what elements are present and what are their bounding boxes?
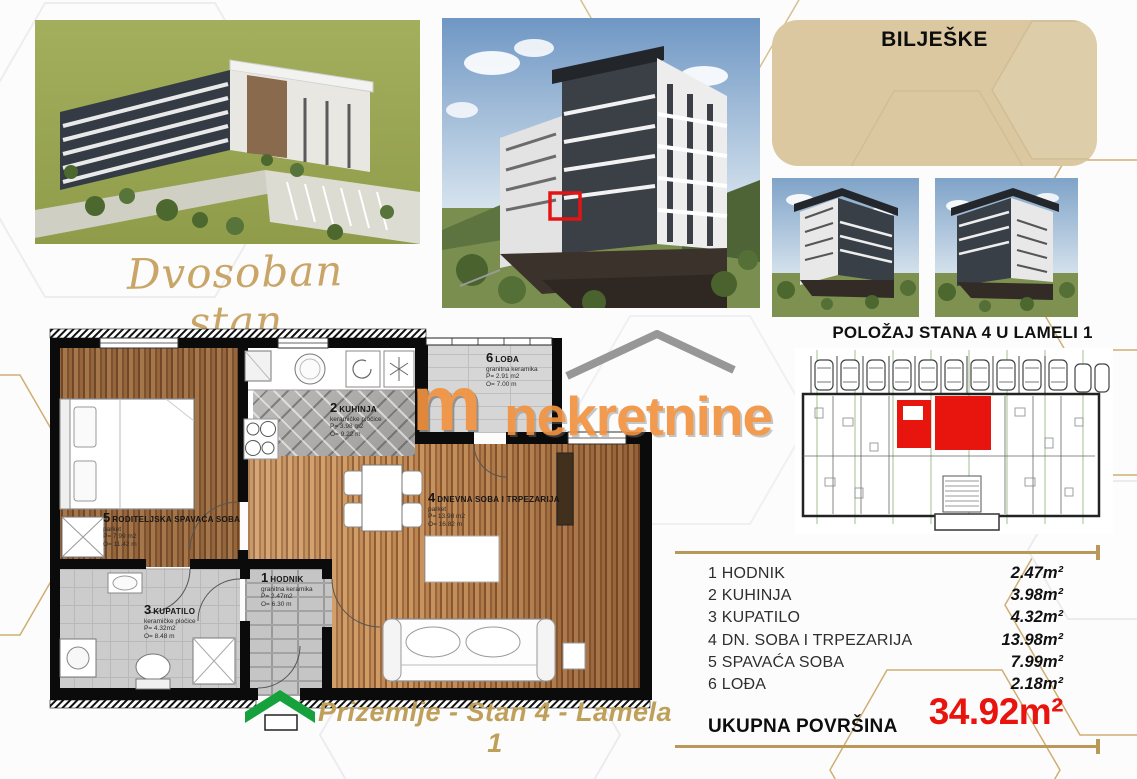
site-plan bbox=[795, 348, 1113, 534]
street-render-photo bbox=[442, 18, 760, 308]
aerial-render-photo bbox=[35, 20, 420, 244]
list-item: 2 KUHINJA3.98m² bbox=[708, 586, 1063, 608]
side-table bbox=[563, 643, 585, 669]
total-area-value: 34.92m² bbox=[929, 691, 1063, 733]
total-area-label: UKUPNA POVRŠINA bbox=[708, 716, 898, 738]
floor-plan-drawing bbox=[48, 325, 654, 735]
summary-top-rule bbox=[675, 551, 1100, 554]
corner-render-photo-right bbox=[935, 178, 1078, 317]
apartment-floor-plan: 5RODITELJSKA SPAVAĆA SOBA parket P= 7.99… bbox=[48, 325, 654, 735]
bathroom-fixtures bbox=[60, 573, 235, 689]
bed bbox=[60, 399, 194, 509]
list-item: 3 KUPATILO4.32m² bbox=[708, 608, 1063, 630]
notes-box: BILJEŠKE bbox=[772, 20, 1097, 166]
tv-unit bbox=[557, 453, 573, 525]
list-item: 5 SPAVAĆA SOBA7.99m² bbox=[708, 653, 1063, 675]
apartment-highlight bbox=[897, 396, 991, 450]
dining-set bbox=[344, 465, 422, 531]
corner-render-photo-left bbox=[772, 178, 919, 317]
wardrobe bbox=[62, 517, 104, 557]
kitchen-fixtures bbox=[244, 351, 415, 459]
parked-cars bbox=[815, 360, 1109, 392]
coffee-table bbox=[425, 536, 499, 582]
area-summary-panel: 1 HODNIK2.47m² 2 KUHINJA3.98m² 3 KUPATIL… bbox=[675, 551, 1103, 751]
flyer-canvas: Dvosoban stan bbox=[0, 0, 1137, 779]
list-item: 4 DN. SOBA I TRPEZARIJA13.98m² bbox=[708, 631, 1063, 653]
floor-unit-caption: Prizemlje - Stan 4 - Lamela 1 bbox=[310, 697, 680, 759]
list-item: 1 HODNIK2.47m² bbox=[708, 564, 1063, 586]
couch bbox=[383, 619, 555, 681]
room-area-list: 1 HODNIK2.47m² 2 KUHINJA3.98m² 3 KUPATIL… bbox=[708, 564, 1063, 697]
position-plan-title: POLOŽAJ STANA 4 U LAMELI 1 bbox=[795, 323, 1130, 343]
summary-bottom-rule bbox=[675, 745, 1100, 748]
notes-title: BILJEŠKE bbox=[772, 28, 1097, 52]
summary-bottom-rule-cap bbox=[1096, 739, 1100, 754]
summary-top-rule-cap bbox=[1096, 545, 1100, 560]
